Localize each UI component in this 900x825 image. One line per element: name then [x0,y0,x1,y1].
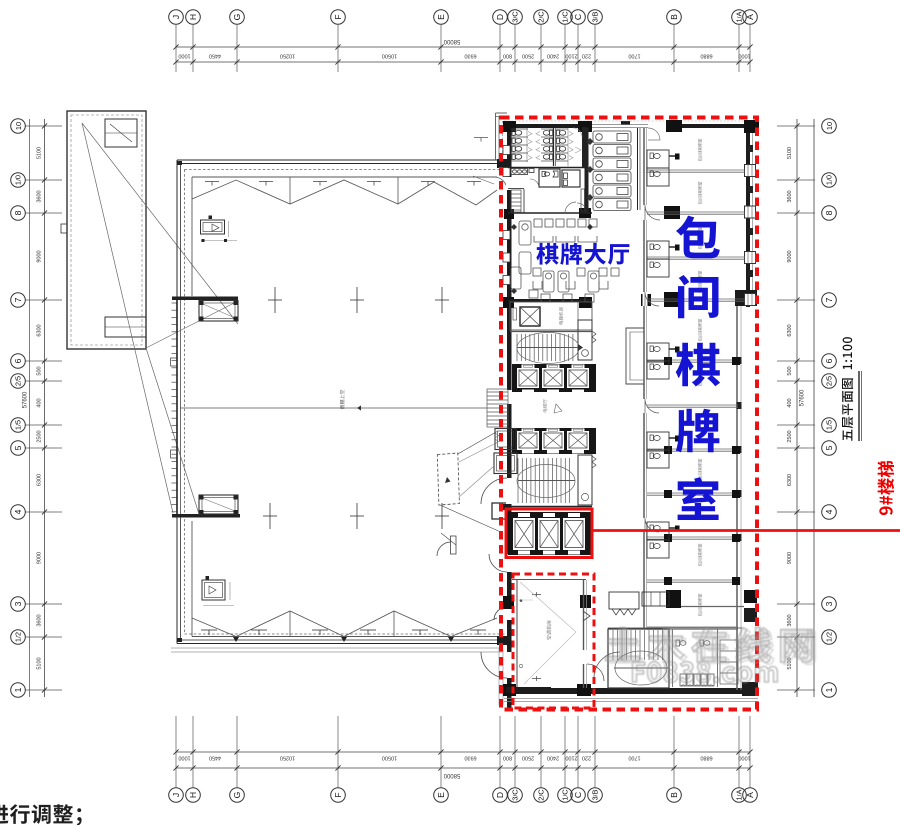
svg-text:400: 400 [37,398,43,407]
svg-text:9000: 9000 [787,552,793,564]
svg-text:2500: 2500 [37,430,43,442]
svg-text:10: 10 [14,122,23,130]
svg-text:10500: 10500 [382,755,397,761]
svg-text:800: 800 [503,53,512,59]
svg-text:2500: 2500 [522,53,534,59]
svg-text:400: 400 [787,398,793,407]
svg-text:3600: 3600 [787,190,793,202]
svg-text:5: 5 [13,445,23,450]
svg-text:9000: 9000 [787,250,793,262]
svg-text:J: J [171,15,181,19]
svg-text:1/0: 1/0 [14,175,23,185]
svg-text:B: B [669,14,679,20]
svg-text:10250: 10250 [280,53,295,59]
svg-text:10250: 10250 [280,755,295,761]
svg-text:2/C: 2/C [537,11,546,23]
svg-text:3600: 3600 [37,614,43,626]
svg-text:G: G [232,13,242,20]
svg-text:8: 8 [824,210,834,215]
svg-text:1000: 1000 [178,755,190,761]
svg-text:3/C: 3/C [511,789,520,801]
svg-text:4: 4 [824,509,834,514]
svg-text:5100: 5100 [787,147,793,159]
svg-text:7: 7 [824,297,834,302]
svg-text:8: 8 [13,210,23,215]
svg-text:3: 3 [824,601,834,606]
svg-text:2500: 2500 [522,755,534,761]
svg-text:H: H [188,14,198,20]
svg-text:3/C: 3/C [511,11,520,23]
svg-text:1/2: 1/2 [825,632,834,642]
svg-text:1000: 1000 [178,53,190,59]
svg-text:5: 5 [824,445,834,450]
svg-text:7: 7 [13,297,23,302]
svg-text:2/5: 2/5 [14,376,23,386]
svg-text:6880: 6880 [700,53,712,59]
svg-text:3/B: 3/B [591,790,600,801]
svg-text:2500: 2500 [787,430,793,442]
svg-text:1/5: 1/5 [14,420,23,430]
svg-text:220: 220 [582,53,591,59]
svg-text:4450: 4450 [209,53,221,59]
svg-text:800: 800 [503,755,512,761]
svg-text:10: 10 [825,122,834,130]
svg-text:500: 500 [787,366,793,375]
svg-text:4: 4 [13,509,23,514]
svg-text:C: C [573,14,583,20]
svg-text:J: J [171,793,181,797]
svg-text:5100: 5100 [37,147,43,159]
svg-text:3: 3 [13,601,23,606]
svg-text:2/5: 2/5 [825,376,834,386]
svg-text:1/C: 1/C [561,11,570,23]
svg-text:A: A [745,792,755,798]
svg-text:6300: 6300 [787,324,793,336]
svg-text:3600: 3600 [37,190,43,202]
svg-text:2100: 2100 [565,755,577,761]
svg-text:D: D [495,14,505,20]
svg-text:57600: 57600 [800,389,806,406]
svg-text:E: E [436,792,446,798]
svg-text:3/B: 3/B [591,12,600,23]
svg-text:2400: 2400 [547,755,559,761]
svg-text:D: D [495,792,505,798]
svg-text:2400: 2400 [547,53,559,59]
svg-text:1: 1 [13,687,23,692]
svg-text:6930: 6930 [464,755,476,761]
svg-text:2/C: 2/C [537,789,546,801]
svg-text:1/C: 1/C [561,789,570,801]
svg-text:220: 220 [582,755,591,761]
svg-text:6: 6 [824,358,834,363]
svg-text:3600: 3600 [787,614,793,626]
svg-text:57600: 57600 [23,391,29,408]
svg-text:B: B [669,792,679,798]
svg-text:1/0: 1/0 [825,175,834,185]
svg-text:58000: 58000 [443,772,460,778]
svg-text:E: E [436,14,446,20]
svg-text:6300: 6300 [37,324,43,336]
svg-text:1000: 1000 [738,755,750,761]
svg-text:6: 6 [13,358,23,363]
svg-text:1/5: 1/5 [825,420,834,430]
svg-text:H: H [188,792,198,798]
svg-text:10500: 10500 [382,53,397,59]
svg-text:G: G [232,791,242,798]
svg-text:6880: 6880 [700,755,712,761]
svg-text:2100: 2100 [565,53,577,59]
svg-text:500: 500 [37,366,43,375]
svg-text:C: C [573,792,583,798]
svg-text:1/2: 1/2 [14,632,23,642]
svg-text:9000: 9000 [37,552,43,564]
svg-text:1700: 1700 [628,53,640,59]
svg-text:6300: 6300 [37,474,43,486]
svg-text:6300: 6300 [787,474,793,486]
svg-text:1700: 1700 [628,755,640,761]
svg-text:A: A [745,14,755,20]
svg-text:5100: 5100 [37,657,43,669]
svg-text:4450: 4450 [209,755,221,761]
svg-text:F: F [333,14,343,19]
svg-text:F: F [333,792,343,797]
svg-text:6930: 6930 [464,53,476,59]
svg-text:58000: 58000 [443,38,460,44]
svg-text:1000: 1000 [738,53,750,59]
svg-text:1: 1 [824,687,834,692]
svg-text:9000: 9000 [37,250,43,262]
